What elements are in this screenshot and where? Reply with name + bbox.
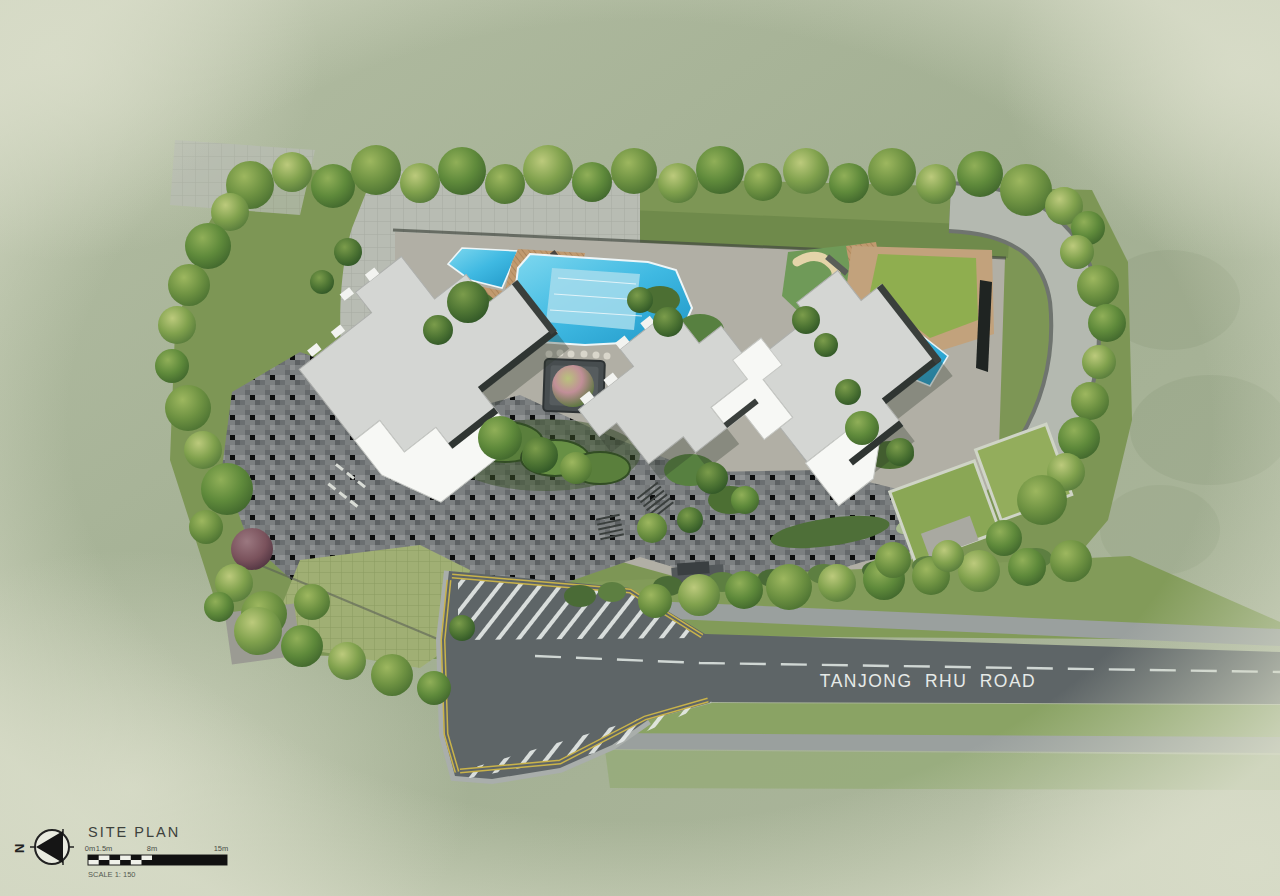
scale-caption: SCALE 1: 150 [88, 870, 136, 879]
svg-text:0m: 0m [85, 844, 95, 853]
svg-text:1.5m: 1.5m [96, 844, 113, 853]
svg-text:8m: 8m [147, 844, 157, 853]
vignette [0, 0, 1280, 896]
svg-text:15m: 15m [214, 844, 229, 853]
compass-north-letter: N [12, 844, 27, 853]
site-plan-title: SITE PLAN [88, 824, 180, 840]
site-plan-canvas: TANJONG RHU ROAD [0, 0, 1280, 896]
site-plan-page: TANJONG RHU ROAD [0, 0, 1280, 896]
